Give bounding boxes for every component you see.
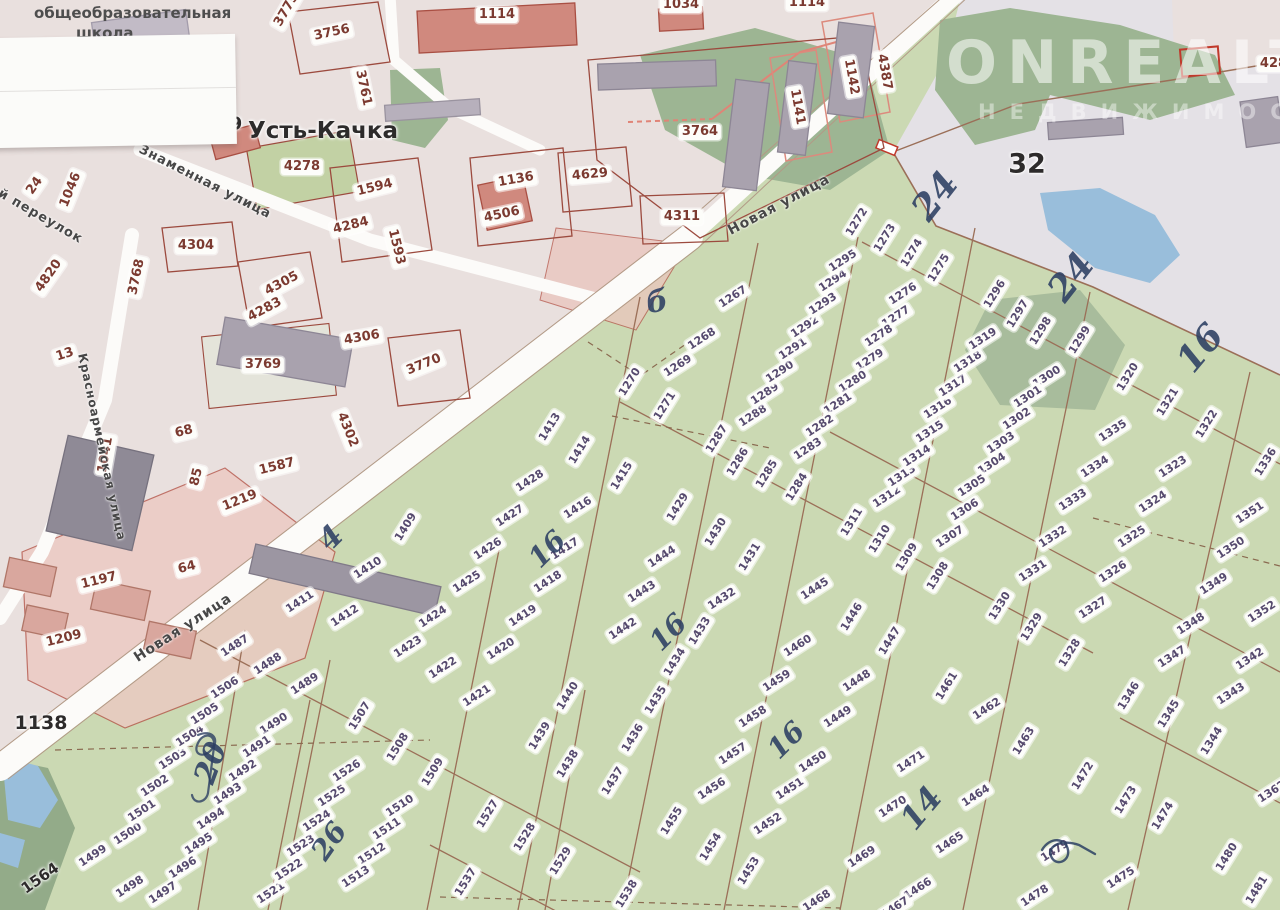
urban-plot-label: 4302: [332, 407, 363, 452]
plot-label: 1285: [752, 456, 782, 493]
plot-label: 1431: [735, 539, 765, 576]
urban-plot-label: 3775: [270, 0, 305, 32]
plot-label: 1296: [980, 276, 1010, 313]
plot-label: 1284: [782, 469, 812, 506]
plot-label: 1453: [734, 853, 764, 890]
handwritten-annotation: 4: [311, 518, 351, 558]
urban-plot-label: 1197: [77, 568, 122, 594]
plot-label: 1334: [1077, 452, 1114, 483]
map-text: 32: [1008, 149, 1046, 180]
plot-label: 1480: [1212, 839, 1242, 876]
plot-label: 1326: [1095, 557, 1132, 588]
plot-label: 1430: [701, 514, 731, 551]
urban-plot-label: 4311: [661, 209, 703, 225]
urban-plot-label: 1594: [353, 175, 398, 201]
plot-label: 1455: [657, 803, 687, 840]
plot-label: 1525: [314, 781, 351, 812]
urban-plot-label: 68: [170, 421, 197, 442]
plot-label: 1465: [932, 828, 969, 859]
plot-label: 1320: [1113, 359, 1143, 396]
plot-label: 1297: [1003, 296, 1033, 333]
plot-label: 1346: [1114, 678, 1144, 715]
urban-plot-label: 1587: [255, 454, 300, 480]
urban-plot-label: 4506: [480, 203, 525, 227]
plot-label: 1439: [525, 718, 555, 755]
plot-label: 1442: [605, 614, 642, 645]
plot-label: 1347: [1154, 642, 1191, 673]
plot-label: 1512: [354, 839, 391, 870]
urban-plot-label: 1209: [42, 626, 87, 652]
plot-label: 1322: [1192, 406, 1222, 443]
plot-label: 1325: [1114, 522, 1151, 553]
plot-label: 1456: [694, 774, 731, 805]
plot-label: 1330: [985, 588, 1015, 625]
plot-label: 1444: [644, 542, 681, 573]
plot-label: 1348: [1173, 609, 1210, 640]
plot-label: 1528: [510, 819, 540, 856]
plot-label: 1473: [1111, 782, 1141, 819]
plot-label: 1506: [207, 673, 244, 704]
onrealt-watermark: ONREALT: [946, 28, 1280, 98]
plot-label: 1509: [418, 754, 448, 791]
plot-label: 1335: [1095, 416, 1132, 447]
plot-label: 1428: [512, 466, 549, 497]
plot-label: 1537: [451, 864, 481, 901]
watermark-subtitle: НЕДВИЖИМОСТЬ: [978, 100, 1280, 124]
plot-label: 1349: [1196, 569, 1233, 600]
plot-label: 1497: [145, 878, 182, 909]
handwritten-annotation: 14: [892, 779, 950, 838]
street-name-label: Новая улица: [725, 171, 833, 238]
plot-label: 1351: [1232, 498, 1269, 529]
urban-plot-label: 1034: [660, 0, 702, 13]
plot-label: 1267: [715, 282, 752, 313]
plot-label: 1481: [1242, 872, 1272, 909]
plot-label: 1437: [598, 763, 628, 800]
plot-label: 1446: [837, 599, 867, 636]
plot-label: 1413: [535, 409, 565, 446]
urban-plot-label: 24: [22, 172, 49, 201]
urban-plot-label: 85: [186, 463, 207, 490]
plot-label: 1419: [505, 601, 542, 632]
urban-plot-label: 3756: [310, 21, 355, 45]
plot-label: 1436: [618, 720, 648, 757]
plot-label: 1328: [1055, 635, 1085, 672]
plot-label: 1461: [932, 668, 962, 705]
plot-label: 1414: [565, 432, 595, 469]
urban-plot-label: 3770: [401, 350, 446, 381]
plot-label: 1521: [253, 878, 290, 909]
plot-label: 1416: [560, 493, 597, 524]
plot-label: 1513: [338, 862, 375, 893]
plot-label: 1440: [553, 678, 583, 715]
urban-plot-label: 1114: [786, 0, 828, 11]
plot-label: 1474: [1148, 798, 1178, 835]
plot-label: 1332: [1035, 522, 1072, 553]
plot-label: 1499: [75, 841, 112, 872]
urban-plot-label: 4284: [329, 213, 374, 239]
plot-label: 1298: [1026, 313, 1056, 350]
plot-label: 1469: [844, 842, 881, 873]
plot-label: 1445: [797, 574, 834, 605]
plot-label: 1429: [663, 489, 693, 526]
urban-plot-label: 1114: [476, 7, 518, 23]
handwritten-annotation: 16: [761, 715, 812, 766]
plot-label: 1415: [607, 458, 637, 495]
plot-label: 1495: [181, 829, 218, 860]
plot-label: 1458: [735, 702, 772, 733]
plot-label: 1501: [124, 796, 161, 827]
plot-label: 1454: [696, 829, 726, 866]
plot-label: 1489: [287, 669, 324, 700]
plot-label: 1443: [624, 577, 661, 608]
urban-plot-label: 4387: [872, 50, 895, 94]
urban-plot-label: 1593: [383, 225, 409, 270]
plot-label: 1487: [217, 631, 254, 662]
plot-label: 1308: [923, 558, 953, 595]
urban-plot-label: 4305: [260, 267, 305, 301]
plot-label: 1502: [137, 771, 174, 802]
plot-label: 1306: [947, 495, 984, 526]
plot-label: 1329: [1017, 609, 1047, 646]
plot-label: 1471: [893, 747, 930, 778]
paper-sticker: [0, 34, 237, 148]
plot-label: 1324: [1135, 487, 1172, 518]
urban-plot-label: 1046: [56, 167, 87, 212]
plot-label: 1449: [820, 702, 857, 733]
plot-label: 1309: [892, 539, 922, 576]
urban-plot-label: 4629: [568, 165, 611, 185]
plot-label: 1275: [924, 250, 954, 287]
street-name-label: Красноармейская улица: [75, 352, 128, 542]
plot-label: 1409: [391, 509, 421, 546]
plot-label: 1317: [935, 371, 972, 402]
map-text: 1564: [18, 859, 63, 898]
plot-label: 1362: [1254, 777, 1280, 808]
plot-label: 1307: [932, 522, 969, 553]
handwritten-annotation: 20: [187, 737, 234, 788]
plot-label: 1311: [837, 504, 867, 541]
plot-label: 1270: [615, 364, 645, 401]
handwritten-annotation: 16: [1168, 315, 1232, 380]
plot-label: 1350: [1213, 533, 1250, 564]
plot-label: 1273: [870, 220, 900, 257]
plot-label: 1459: [759, 666, 796, 697]
plot-label: 1422: [425, 653, 462, 684]
map-text: Усть-Качка: [248, 118, 398, 144]
handwritten-annotation: 16: [522, 524, 573, 575]
plot-label: 1269: [660, 351, 697, 382]
plot-label: 1500: [110, 819, 147, 850]
plot-label: 1488: [250, 649, 287, 680]
urban-plot-label: 3764: [679, 124, 721, 140]
plot-label: 1331: [1015, 556, 1052, 587]
plot-label: 1452: [750, 809, 787, 840]
urban-plot-label: 1219: [217, 486, 262, 517]
plot-label: 1448: [839, 666, 876, 697]
plot-label: 1529: [546, 843, 576, 880]
plot-label: 1491: [239, 732, 276, 763]
plot-label: 1336: [1251, 444, 1280, 481]
plot-label: 1479: [1037, 836, 1074, 867]
urban-plot-label: 4820: [30, 254, 67, 298]
plot-label: 1342: [1232, 644, 1269, 675]
plot-label: 1318: [950, 347, 987, 378]
plot-label: 1460: [780, 631, 817, 662]
plot-label: 1345: [1154, 696, 1184, 733]
plot-label: 1463: [1009, 723, 1039, 760]
plot-label: 1286: [723, 444, 753, 481]
urban-plot-label: 1141: [785, 85, 808, 129]
urban-plot-label: 4306: [340, 326, 384, 349]
plot-label: 1527: [473, 796, 503, 833]
plot-label: 1268: [684, 324, 721, 355]
plot-label: 1427: [492, 501, 529, 532]
plot-label: 1423: [390, 632, 427, 663]
plot-label: 1508: [383, 729, 413, 766]
plot-label: 1432: [704, 584, 741, 615]
plot-label: 1352: [1244, 597, 1280, 628]
plot-label: 1468: [799, 886, 836, 910]
plot-label: 1435: [641, 682, 671, 719]
plot-label: 1274: [897, 235, 927, 272]
plot-label: 1505: [187, 699, 224, 730]
street-name-label: Знаменная улица: [136, 142, 273, 222]
handwritten-annotation: б: [643, 283, 670, 321]
plot-label: 1467: [877, 893, 914, 910]
plot-label: 1343: [1213, 679, 1250, 710]
plot-label: 1312: [869, 482, 906, 513]
plot-label: 1299: [1065, 322, 1095, 359]
plot-label: 1321: [1153, 384, 1183, 421]
urban-plot-label: 4304: [175, 238, 217, 254]
map-photo: 1267126812691270127112721273127412751276…: [0, 0, 1280, 910]
urban-plot-label: 3769: [242, 357, 284, 373]
map-text: 1138: [15, 712, 68, 734]
plot-label: 1287: [702, 421, 732, 458]
plot-label: 1333: [1055, 485, 1092, 516]
urban-plot-label: 1136: [494, 168, 538, 191]
plot-label: 1507: [345, 698, 375, 735]
plot-label: 1323: [1155, 452, 1192, 483]
plot-label: 1462: [969, 694, 1006, 725]
plot-label: 1478: [1017, 881, 1054, 910]
plot-label: 1271: [650, 388, 680, 425]
handwritten-annotation: 24: [903, 163, 967, 228]
school-label-line1: общеобразовательная: [34, 4, 231, 22]
plot-label: 1457: [715, 739, 752, 770]
urban-plot-label: 1142: [839, 55, 862, 99]
plot-label: 1424: [415, 602, 452, 633]
plot-label: 1472: [1068, 758, 1098, 795]
plot-label: 1475: [1103, 863, 1140, 894]
plot-label: 1426: [470, 534, 507, 565]
plot-label: 1425: [449, 567, 486, 598]
plot-label: 1526: [329, 756, 366, 787]
plot-label: 1421: [459, 681, 496, 712]
plot-label: 1272: [842, 204, 872, 241]
urban-plot-label: 64: [173, 557, 200, 578]
plot-label: 1310: [865, 521, 895, 558]
plot-label: 1450: [795, 747, 832, 778]
plot-label: 1411: [282, 587, 319, 618]
plot-label: 1447: [875, 623, 905, 660]
urban-plot-label: 4278: [281, 159, 323, 175]
plot-label: 1451: [772, 774, 809, 805]
plot-label: 1420: [483, 634, 520, 665]
plot-label: 1464: [958, 781, 995, 812]
plot-label: 1410: [350, 553, 387, 584]
plot-label: 1538: [612, 876, 642, 910]
handwritten-annotation: 24: [1039, 244, 1103, 309]
plot-label: 1498: [112, 872, 149, 903]
plot-label: 1438: [553, 746, 583, 783]
plot-label: 1412: [327, 601, 364, 632]
plot-label: 1344: [1197, 723, 1227, 760]
plot-label: 1503: [155, 744, 192, 775]
urban-plot-label: 3768: [125, 255, 149, 300]
urban-plot-label: 3761: [351, 66, 375, 111]
plot-label: 1327: [1075, 593, 1112, 624]
plot-label: 1319: [965, 324, 1002, 355]
